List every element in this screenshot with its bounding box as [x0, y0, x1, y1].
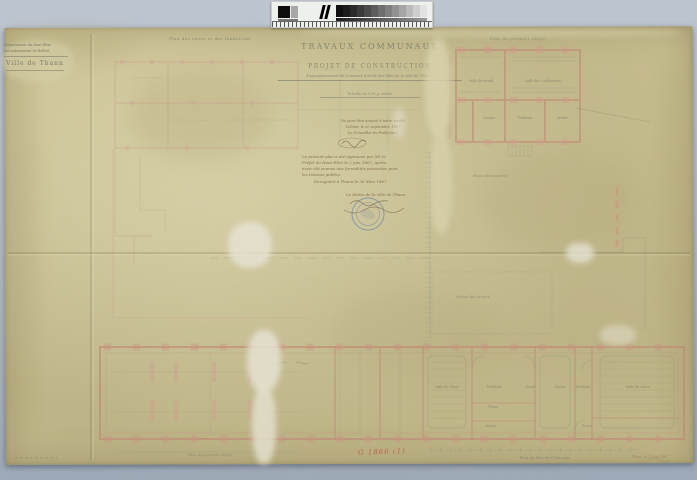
room-label: Préau [478, 405, 508, 409]
room-label: Bûcher [476, 424, 506, 428]
paper-loss-patch [252, 386, 276, 464]
visa-line1: Vu pour être annexé à notre arrêté [318, 119, 428, 123]
plan-first-floor-drawing [450, 50, 580, 156]
signature-flourishes [338, 138, 670, 462]
archive-label-rule [4, 56, 68, 57]
room-label: Vestibule [566, 385, 600, 389]
approval-line4: les travaux publics. [302, 172, 442, 177]
room-label: Préau [572, 424, 602, 428]
archive-label-city: Ville de Thann [6, 60, 76, 67]
paper-fade-streak [430, 132, 452, 234]
scanned-plan-document: Département du Haut-Rhin Arrondissement … [0, 0, 697, 480]
paper-loss-patch [600, 325, 636, 345]
approval-registered: Enregistré à Thann le 26 8bre 1867 [314, 179, 444, 184]
room-label: Salle de travail [458, 79, 504, 83]
archive-label-rule [6, 70, 64, 71]
room-label: Salle de classe [424, 385, 470, 389]
paper-fade-streak [300, 29, 680, 37]
scale-note: Échelle de 0,01 p. mètre [320, 92, 420, 98]
visa-line3: Le Conseiller de Préfecture [318, 131, 428, 135]
grayscale-step-wedge [336, 5, 427, 17]
calibration-bar-icon [324, 5, 330, 19]
plan-ground-floor-drawing [100, 347, 684, 452]
archive-label-line2: Arrondissement de Belfort [4, 49, 82, 53]
paper-loss-patch [247, 330, 281, 392]
room-label: Salle de classe [600, 385, 676, 389]
approval-line3: avoir été soumis aux formalités prescrit… [302, 166, 442, 171]
paper-loss-patch [393, 108, 405, 138]
visa-line2: Colmar, le 20 septembre 1867 [318, 125, 428, 129]
corner-date-note: Thann, le 10 mai 1867 [632, 455, 690, 459]
prefecture-stamp-icon [352, 198, 384, 230]
red-inventory-mark: G 1866 (1) [358, 447, 406, 457]
calibration-ruler [272, 21, 432, 27]
caption-bottom-left: Plan du premier étage [150, 452, 270, 457]
label-preau: Préau découvert [438, 294, 508, 299]
archive-label-line1: Département du Haut-Rhin [4, 43, 82, 47]
paper-fade-streak [425, 38, 451, 138]
caption-ground-floor: Plan du Rez-de-Chaussée [495, 455, 595, 460]
label-place: Place découverte [455, 173, 525, 178]
approval-line1: Le présent plan a été approuvé par Mr le [302, 154, 442, 159]
approval-line2: Préfet du Haut-Rhin le 2 juin 1867, aprè… [302, 160, 442, 165]
caption-foundations: Plan des caves et des fondations [150, 36, 270, 41]
room-label: Vestibule [505, 116, 545, 120]
paper-loss-patch [566, 243, 594, 263]
paper-loss-patch [228, 222, 272, 268]
calibration-strip [271, 1, 433, 28]
calibration-gray-square [291, 6, 298, 18]
plan-linework [0, 0, 697, 480]
room-label: Cuisine [473, 116, 505, 120]
room-label: Vestibule [474, 385, 514, 389]
calibration-black-square [278, 6, 290, 18]
room-label: Salle des Conférences [508, 79, 578, 83]
room-label: Atelier [545, 116, 580, 120]
